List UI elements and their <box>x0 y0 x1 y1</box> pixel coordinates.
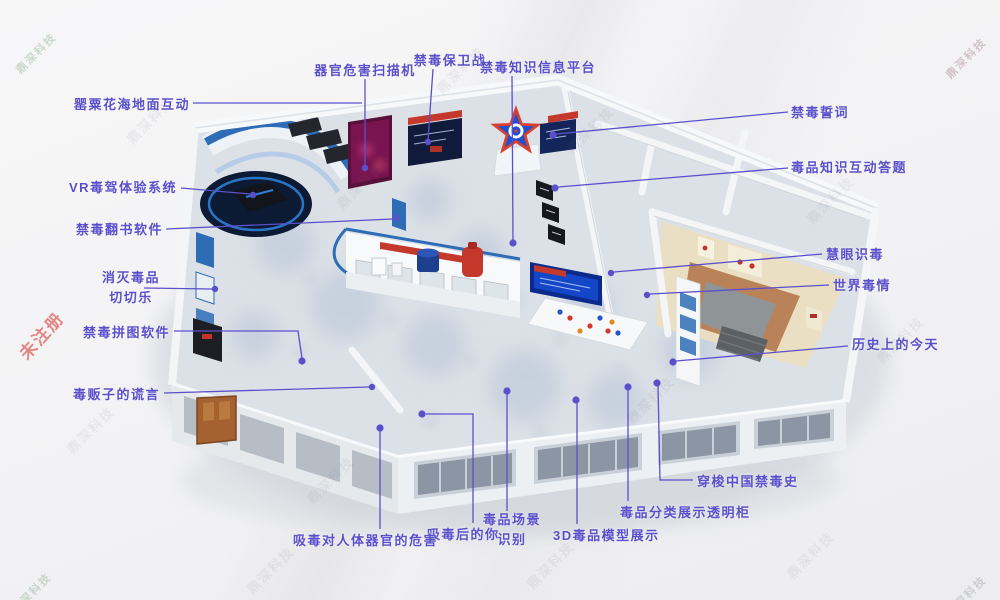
label-organ-harm: 吸毒对人体器官的危害 <box>293 531 438 551</box>
wooden-door <box>197 396 236 444</box>
label-dealer-lies: 毒贩子的谎言 <box>73 385 160 405</box>
label-vr-drugged-driving: VR毒驾体验系统 <box>69 178 177 198</box>
label-transparent-cabinet: 毒品分类展示透明柜 <box>620 503 751 523</box>
label-today-in-history: 历史上的今天 <box>852 335 939 355</box>
label-eliminate-drugs: 消灭毒品 切切乐 <box>102 268 160 307</box>
label-3d-drug-models: 3D毒品模型展示 <box>553 526 660 546</box>
blue-kiosk <box>392 198 406 231</box>
blue-barrel <box>417 249 439 273</box>
lab-equipment <box>372 258 386 275</box>
label-organ-scanner: 器官危害扫描机 <box>314 61 416 81</box>
label-poppy-sea-floor: 罂粟花海地面互动 <box>74 95 190 115</box>
label-sharp-eye-identify: 慧眼识毒 <box>826 245 884 265</box>
label-anti-drug-battle: 禁毒保卫战 <box>414 51 487 71</box>
label-book-flipping: 禁毒翻书软件 <box>76 220 163 240</box>
lab-equipment <box>392 263 402 276</box>
label-jigsaw-software: 禁毒拼图软件 <box>83 323 170 343</box>
poppy-field-screen <box>348 115 392 189</box>
label-anti-drug-pledge: 禁毒誓词 <box>791 103 849 123</box>
exhibition-hall-rendering: 罂粟花海地面互动 器官危害扫描机 禁毒保卫战 禁毒知识信息平台 禁毒誓词 毒品知… <box>0 0 1000 600</box>
label-knowledge-quiz: 毒品知识互动答题 <box>791 158 907 178</box>
label-world-drug-situation: 世界毒情 <box>833 276 891 296</box>
label-china-drug-history: 穿梭中国禁毒史 <box>697 472 799 492</box>
label-knowledge-platform: 禁毒知识信息平台 <box>480 58 596 78</box>
